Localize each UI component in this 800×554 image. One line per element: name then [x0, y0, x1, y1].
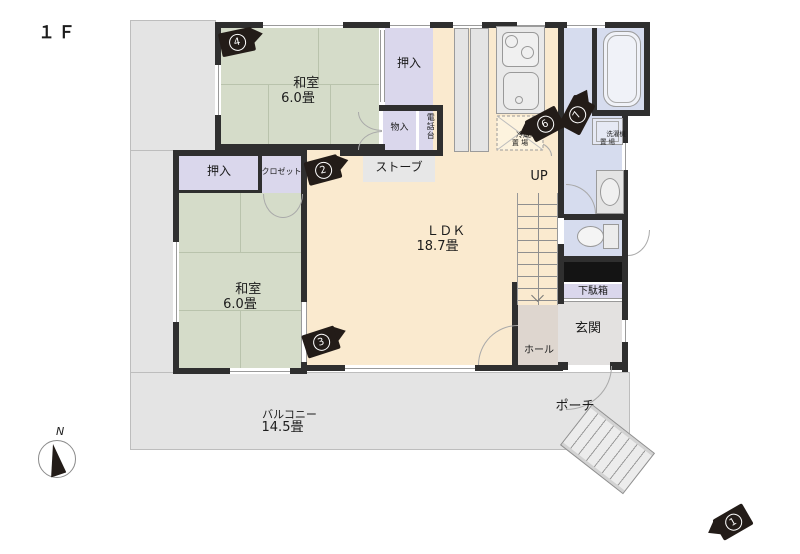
washer-space: 洗濯機置 場 [592, 118, 623, 145]
wall-segment [564, 256, 622, 262]
kitchen-counter [454, 28, 469, 152]
sliding-door [564, 298, 622, 302]
balcony-deck-topleft [130, 20, 216, 152]
label-genkan: 玄関 [558, 322, 618, 337]
sink-drain [515, 96, 523, 104]
label-ldk: ＬＤＫ18.7畳 [395, 210, 480, 270]
wall-segment [610, 362, 628, 370]
label-balcony: バルコニー14.5畳 [240, 396, 325, 449]
label-hall: ホール [520, 345, 558, 357]
label-monoire: 物入 [383, 123, 416, 133]
label-stove: ストーブ [363, 161, 435, 175]
label-washitsu-top: 和室6.0畳 [258, 62, 338, 122]
wall-segment [179, 190, 259, 193]
tatami-grid-line [240, 193, 241, 252]
wall-segment [379, 105, 443, 111]
floor-label: １Ｆ [38, 24, 78, 44]
wall-segment [592, 22, 597, 110]
window [622, 320, 628, 342]
window [622, 143, 628, 170]
floor-plan: １Ｆ [0, 0, 800, 554]
bathtub [603, 31, 641, 107]
toilet-tank [603, 224, 619, 249]
wall-segment [173, 150, 307, 156]
label-getabako: 下駄箱 [564, 286, 622, 298]
burner [521, 46, 534, 59]
label-phone-stand: 電話台 [426, 113, 435, 140]
window [215, 65, 221, 115]
label-porch: ポーチ [545, 400, 605, 415]
kitchen-sink [503, 72, 539, 110]
wall-segment [592, 110, 650, 116]
label-closet: クロゼット [260, 167, 303, 176]
door-arc-toilet [628, 230, 650, 256]
window [230, 368, 290, 374]
toilet-bowl [577, 226, 604, 247]
kitchen-counter [470, 28, 489, 152]
washstand-basin [600, 178, 620, 206]
label-oshiire-lower: 押入 [179, 165, 259, 179]
camera-marker-1: 1 [712, 503, 753, 541]
window [263, 22, 343, 28]
tatami-grid-line [179, 252, 301, 253]
wall-segment [564, 214, 628, 220]
label-washitsu-lower: 和室6.0畳 [200, 268, 280, 328]
window [567, 22, 605, 28]
washer-space-label: 洗濯機置 場 [594, 124, 621, 154]
label-up: UP [524, 170, 554, 185]
label-oshiire-top: 押入 [385, 57, 433, 71]
compass-north-label: N [56, 426, 64, 439]
camera-lens-icon [704, 520, 722, 539]
window [173, 242, 179, 322]
shoe-cabinet-block [564, 262, 622, 282]
washstand [596, 170, 624, 214]
balcony-deck-left [130, 150, 174, 374]
burner [505, 35, 518, 48]
window [390, 22, 430, 28]
window [345, 365, 475, 371]
bathtub-inner [607, 35, 637, 103]
wall-segment [644, 22, 650, 116]
wall-segment [437, 105, 443, 156]
